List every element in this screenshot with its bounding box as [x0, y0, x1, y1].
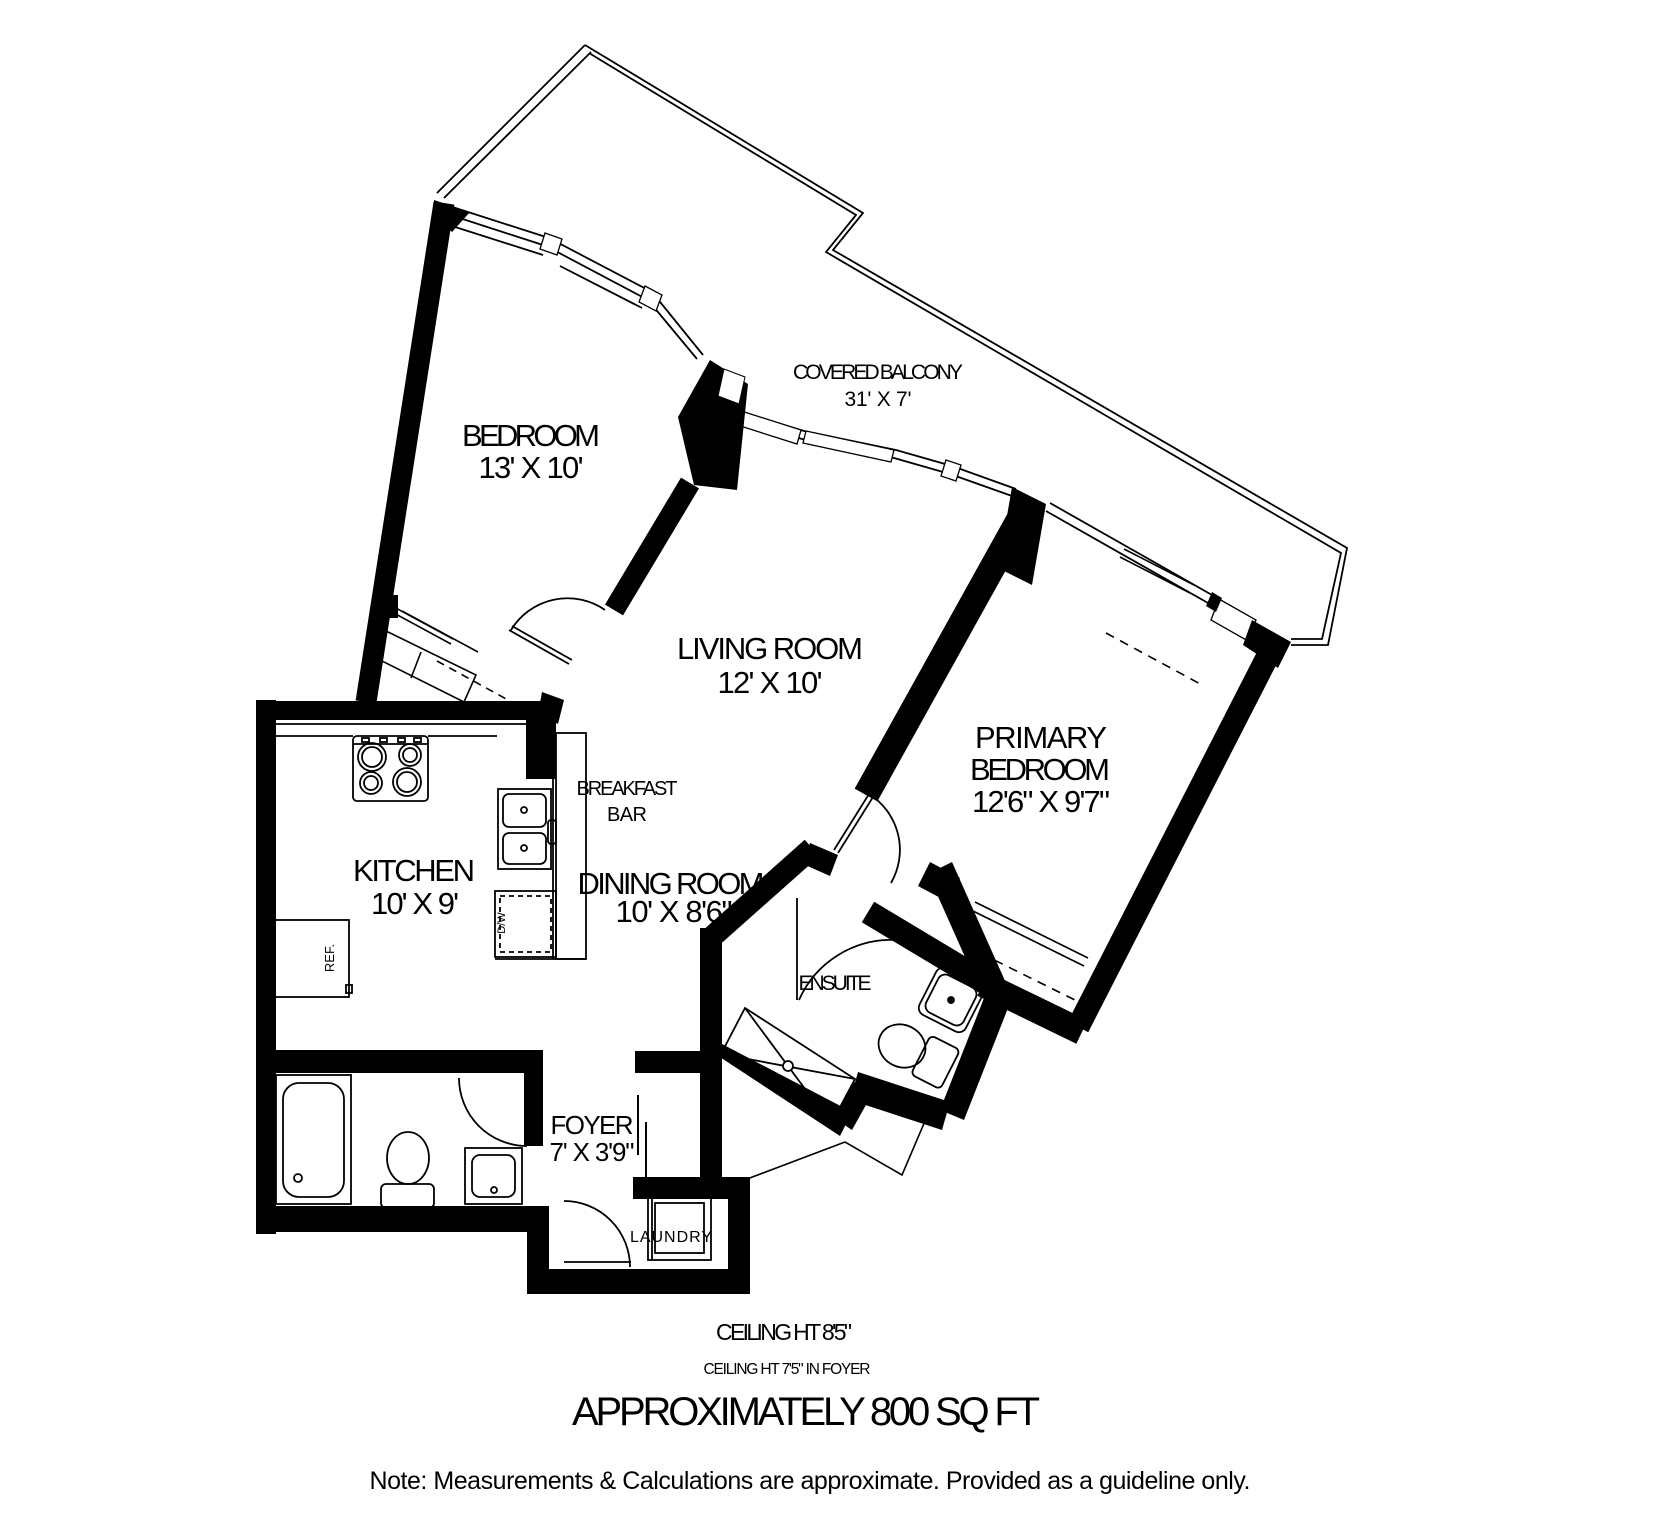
- svg-text:12'6" X 9'7": 12'6" X 9'7": [972, 784, 1110, 819]
- svg-text:10' X 8'6": 10' X 8'6": [616, 894, 733, 929]
- svg-text:CEILING HT 8'5": CEILING HT 8'5": [716, 1319, 852, 1345]
- svg-text:REF.: REF.: [322, 944, 337, 972]
- svg-text:BREAKFAST: BREAKFAST: [577, 778, 678, 800]
- svg-text:12' X 10': 12' X 10': [718, 665, 823, 700]
- svg-text:Note: Measurements & Calculati: Note: Measurements & Calculations are ap…: [370, 1467, 1251, 1495]
- svg-text:LAUNDRY: LAUNDRY: [630, 1229, 712, 1246]
- svg-text:13' X 10': 13' X 10': [479, 450, 584, 485]
- svg-text:31' X 7': 31' X 7': [845, 388, 912, 411]
- svg-text:BAR: BAR: [607, 804, 647, 826]
- svg-text:BEDROOM: BEDROOM: [970, 752, 1110, 787]
- svg-text:ENSUITE: ENSUITE: [799, 972, 872, 995]
- svg-text:COVERED BALCONY: COVERED BALCONY: [793, 361, 963, 384]
- svg-text:10' X 9': 10' X 9': [371, 886, 459, 921]
- svg-text:APPROXIMATELY 800 SQ FT: APPROXIMATELY 800 SQ FT: [572, 1390, 1040, 1434]
- svg-text:LIVING ROOM: LIVING ROOM: [677, 631, 863, 666]
- svg-text:PRIMARY: PRIMARY: [975, 720, 1107, 755]
- svg-text:CEILING HT 7'5" IN FOYER: CEILING HT 7'5" IN FOYER: [704, 1361, 871, 1378]
- svg-text:KITCHEN: KITCHEN: [353, 853, 475, 888]
- svg-text:FOYER: FOYER: [551, 1110, 634, 1140]
- svg-text:D/W: D/W: [496, 912, 508, 934]
- svg-text:7' X 3'9": 7' X 3'9": [550, 1137, 635, 1167]
- svg-text:BEDROOM: BEDROOM: [462, 418, 600, 453]
